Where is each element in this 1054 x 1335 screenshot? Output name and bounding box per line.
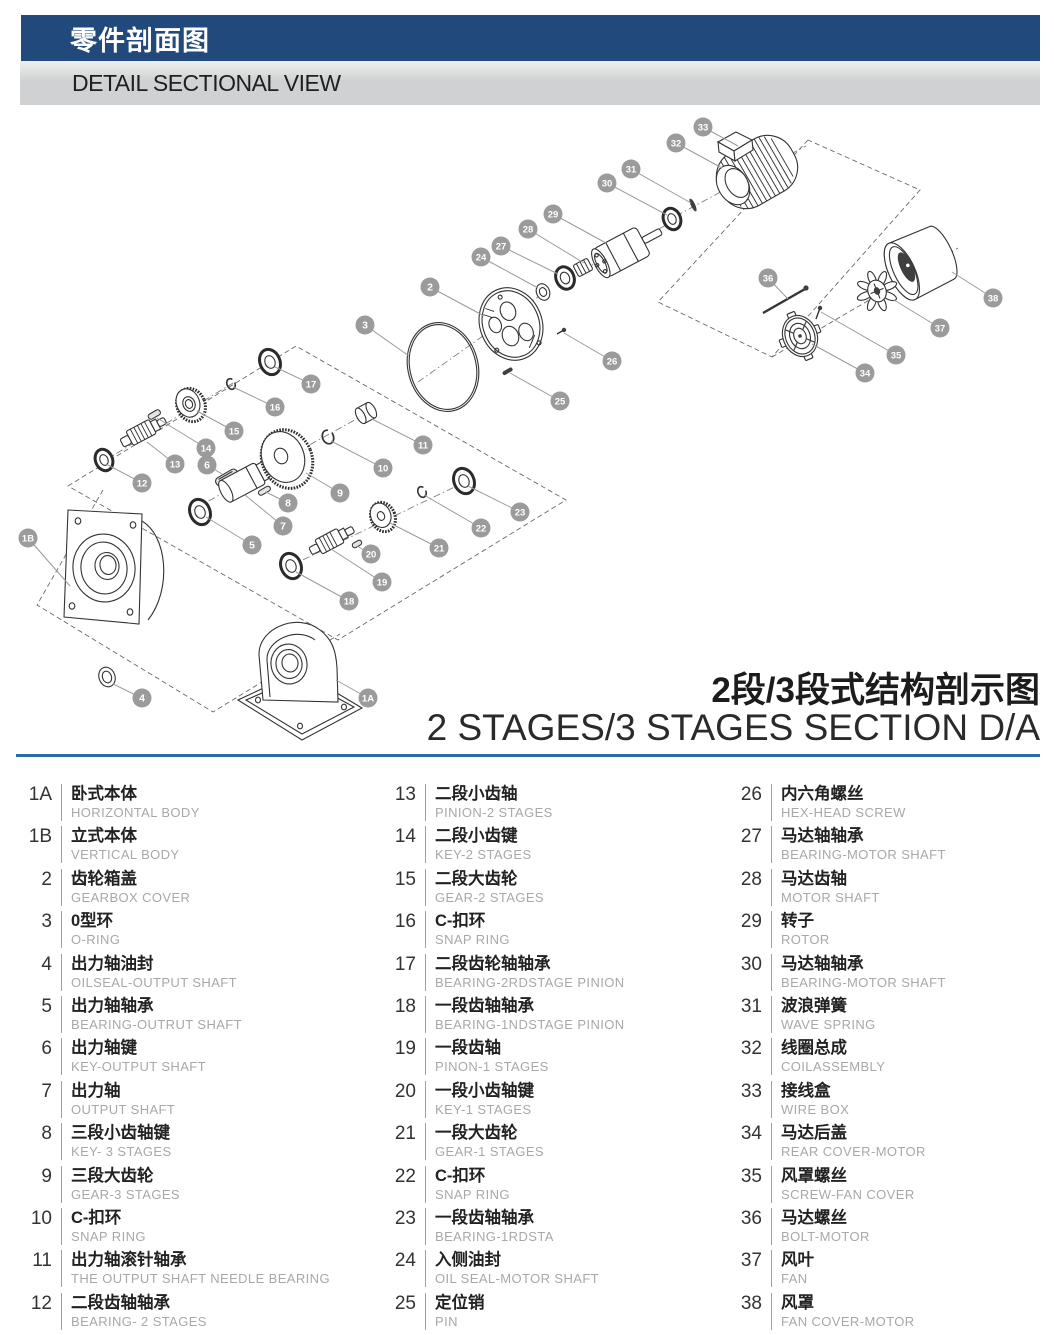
callout-25: 25	[510, 373, 570, 411]
part-names: 0型环O-RING	[61, 911, 120, 948]
callout-26: 26	[564, 333, 622, 371]
part-number: 3	[8, 911, 61, 932]
part-name-en: HEX-HEAD SCREW	[781, 805, 906, 820]
part-number: 23	[372, 1208, 425, 1229]
part-names: 出力轴轴承BEARING-OUTRUT SHAFT	[61, 996, 242, 1033]
part-number: 30	[718, 954, 771, 975]
part-names: 马达轴轴承BEARING-MOTOR SHAFT	[771, 826, 946, 863]
part-number: 36	[718, 1208, 771, 1229]
part-names: C-扣环SNAP RING	[425, 911, 510, 948]
part-30-bearing-motor	[660, 206, 684, 233]
part-name-en: GEARBOX COVER	[71, 890, 190, 905]
part-name-cn: 卧式本体	[71, 784, 200, 805]
part-number: 14	[372, 826, 425, 847]
part-name-cn: 二段大齿轮	[435, 869, 544, 890]
part-name-cn: 转子	[781, 911, 830, 932]
part-name-cn: 线圈总成	[781, 1038, 885, 1059]
part-row: 26内六角螺丝HEX-HEAD SCREW	[718, 784, 946, 826]
part-name-en: OILSEAL-OUTPUT SHAFT	[71, 975, 237, 990]
part-row: 24入侧油封OIL SEAL-MOTOR SHAFT	[372, 1250, 625, 1292]
part-name-en: PIN	[435, 1314, 485, 1329]
part-names: 二段小齿轴PINION-2 STAGES	[425, 784, 553, 821]
part-13-pinion-2nd	[118, 413, 169, 450]
part-name-en: SCREW-FAN COVER	[781, 1187, 915, 1202]
part-names: 入侧油封OIL SEAL-MOTOR SHAFT	[425, 1250, 599, 1287]
part-name-en: BEARING-OUTRUT SHAFT	[71, 1017, 242, 1032]
part-names: 一段齿轴PINON-1 STAGES	[425, 1038, 549, 1075]
part-row: 35风罩螺丝SCREW-FAN COVER	[718, 1166, 946, 1208]
part-names: 转子ROTOR	[771, 911, 830, 948]
callout-16: 16	[233, 387, 285, 417]
part-number: 12	[8, 1293, 61, 1314]
svg-text:38: 38	[988, 293, 999, 304]
svg-text:5: 5	[249, 539, 255, 551]
part-14-key-2nd	[147, 409, 161, 420]
part-number: 31	[718, 996, 771, 1017]
part-4-oil-seal-output	[96, 665, 118, 689]
part-name-en: BEARING-2RDSTAGE PINION	[435, 975, 625, 990]
part-name-en: OIL SEAL-MOTOR SHAFT	[435, 1271, 599, 1286]
part-number: 28	[718, 869, 771, 890]
part-row: 1A卧式本体HORIZONTAL BODY	[8, 784, 330, 826]
part-36-bolt-motor	[763, 285, 809, 313]
part-name-cn: 马达后盖	[781, 1123, 926, 1144]
part-number: 2	[8, 869, 61, 890]
part-name-cn: 三段大齿轮	[71, 1166, 180, 1187]
part-10-snap-ring	[320, 428, 335, 445]
part-row: 14二段小齿键KEY-2 STAGES	[372, 826, 625, 868]
part-names: 风叶FAN	[771, 1250, 814, 1287]
callout-35: 35	[821, 312, 906, 365]
part-5-bearing-output	[186, 496, 214, 528]
part-number: 16	[372, 911, 425, 932]
svg-text:14: 14	[201, 443, 212, 454]
part-number: 25	[372, 1293, 425, 1314]
diagram-title-en: 2 STAGES/3 STAGES SECTION D/A	[427, 707, 1040, 749]
callout-2: 2	[421, 278, 485, 317]
part-row: 21一段大齿轮GEAR-1 STAGES	[372, 1123, 625, 1165]
part-row: 19一段齿轴PINON-1 STAGES	[372, 1038, 625, 1080]
callout-9: 9	[306, 473, 350, 503]
part-28-motor-shaft	[573, 258, 593, 277]
svg-text:34: 34	[860, 368, 871, 379]
part-name-cn: C-扣环	[435, 1166, 510, 1187]
part-1b-vertical-body	[64, 510, 164, 624]
part-3-o-ring	[398, 314, 489, 419]
callout-29: 29	[544, 205, 607, 244]
part-name-cn: 二段小齿键	[435, 826, 532, 847]
part-name-cn: 出力轴油封	[71, 954, 237, 975]
part-12-bearing	[92, 447, 116, 474]
part-name-cn: 风罩螺丝	[781, 1166, 915, 1187]
part-names: 内六角螺丝HEX-HEAD SCREW	[771, 784, 906, 821]
callout-12: 12	[106, 464, 152, 493]
part-20-key-1st	[351, 539, 362, 548]
part-names: 三段小齿轴键KEY- 3 STAGES	[61, 1123, 172, 1160]
callout-3: 3	[356, 316, 410, 357]
part-name-cn: 一段齿轴轴承	[435, 996, 625, 1017]
part-number: 13	[372, 784, 425, 805]
callout-1B: 1B	[19, 529, 71, 587]
part-number: 37	[718, 1250, 771, 1271]
svg-text:25: 25	[555, 396, 566, 407]
part-names: 马达后盖REAR COVER-MOTOR	[771, 1123, 926, 1160]
parts-list-column-3: 26内六角螺丝HEX-HEAD SCREW27马达轴轴承BEARING-MOTO…	[718, 784, 946, 1335]
part-name-cn: 波浪弹簧	[781, 996, 876, 1017]
part-31-wave-spring	[688, 198, 698, 213]
part-name-en: PINION-2 STAGES	[435, 805, 553, 820]
callout-18: 18	[296, 572, 359, 611]
part-number: 24	[372, 1250, 425, 1271]
part-29-rotor	[588, 217, 668, 280]
callout-17: 17	[275, 367, 321, 394]
part-number: 27	[718, 826, 771, 847]
part-name-cn: 风叶	[781, 1250, 814, 1271]
svg-text:1B: 1B	[22, 533, 34, 544]
callout-5: 5	[206, 517, 262, 555]
part-name-en: KEY- 3 STAGES	[71, 1144, 172, 1159]
part-row: 16C-扣环SNAP RING	[372, 911, 625, 953]
part-name-cn: C-扣环	[71, 1208, 146, 1229]
part-name-en: BEARING-MOTOR SHAFT	[781, 975, 946, 990]
svg-text:32: 32	[671, 138, 682, 149]
svg-text:28: 28	[523, 224, 534, 235]
part-row: 23一段齿轴轴承BEARING-1RDSTA	[372, 1208, 625, 1250]
exploded-view-diagram: 1A1B234567891011121314151617181920212223…	[0, 0, 1054, 760]
part-name-en: GEAR-2 STAGES	[435, 890, 544, 905]
svg-text:8: 8	[285, 497, 291, 509]
part-names: 线圈总成COILASSEMBLY	[771, 1038, 885, 1075]
callout-19: 19	[331, 549, 392, 592]
part-24-oil-seal-motor	[534, 282, 552, 303]
part-number: 1A	[8, 784, 61, 805]
part-name-cn: 出力轴键	[71, 1038, 206, 1059]
part-number: 22	[372, 1166, 425, 1187]
part-name-cn: 一段小齿轴键	[435, 1081, 534, 1102]
part-names: 出力轴键KEY-OUTPUT SHAFT	[61, 1038, 206, 1075]
part-row: 38风罩FAN COVER-MOTOR	[718, 1293, 946, 1335]
part-row: 13二段小齿轴PINION-2 STAGES	[372, 784, 625, 826]
part-number: 35	[718, 1166, 771, 1187]
part-row: 7出力轴OUTPUT SHAFT	[8, 1081, 330, 1123]
part-name-en: SNAP RING	[71, 1229, 146, 1244]
svg-text:15: 15	[229, 426, 240, 437]
part-name-en: BEARING-MOTOR SHAFT	[781, 847, 946, 862]
part-names: C-扣环SNAP RING	[61, 1208, 146, 1245]
part-19-pinion-1st	[307, 522, 357, 559]
part-number: 17	[372, 954, 425, 975]
part-number: 32	[718, 1038, 771, 1059]
part-1a-horizontal-body	[238, 622, 362, 740]
part-name-cn: 齿轮箱盖	[71, 869, 190, 890]
part-names: 马达齿轴MOTOR SHAFT	[771, 869, 880, 906]
part-number: 21	[372, 1123, 425, 1144]
svg-text:1A: 1A	[362, 693, 374, 704]
part-number: 29	[718, 911, 771, 932]
part-name-en: REAR COVER-MOTOR	[781, 1144, 926, 1159]
part-names: 马达螺丝BOLT-MOTOR	[771, 1208, 870, 1245]
part-row: 28马达齿轴MOTOR SHAFT	[718, 869, 946, 911]
part-row: 22C-扣环SNAP RING	[372, 1166, 625, 1208]
part-name-en: KEY-1 STAGES	[435, 1102, 534, 1117]
part-row: 11出力轴滚针轴承THE OUTPUT SHAFT NEEDLE BEARING	[8, 1250, 330, 1292]
part-name-cn: 0型环	[71, 911, 120, 932]
part-names: 风罩FAN COVER-MOTOR	[771, 1293, 915, 1330]
part-number: 18	[372, 996, 425, 1017]
callout-11: 11	[372, 419, 433, 455]
part-name-cn: 定位销	[435, 1293, 485, 1314]
callout-23: 23	[468, 486, 530, 522]
callout-10: 10	[331, 441, 393, 478]
part-row: 10C-扣环SNAP RING	[8, 1208, 330, 1250]
svg-text:36: 36	[763, 273, 774, 284]
part-names: 立式本体VERTICAL BODY	[61, 826, 180, 863]
part-number: 34	[718, 1123, 771, 1144]
callout-14: 14	[157, 418, 216, 458]
svg-text:23: 23	[515, 507, 526, 518]
parts-list-column-1: 1A卧式本体HORIZONTAL BODY1B立式本体VERTICAL BODY…	[8, 784, 330, 1335]
part-34-rear-cover	[771, 305, 829, 367]
part-name-en: BEARING-1RDSTA	[435, 1229, 554, 1244]
callout-layer: 1A1B234567891011121314151617181920212223…	[19, 118, 1003, 708]
part-names: 一段大齿轮GEAR-1 STAGES	[425, 1123, 544, 1160]
part-21-gear-1st	[366, 499, 399, 536]
part-17-bearing-2nd	[256, 346, 284, 378]
part-row: 1B立式本体VERTICAL BODY	[8, 826, 330, 868]
part-name-en: FAN	[781, 1271, 814, 1286]
part-name-en: VERTICAL BODY	[71, 847, 180, 862]
part-row: 36马达螺丝BOLT-MOTOR	[718, 1208, 946, 1250]
part-number: 15	[372, 869, 425, 890]
accent-divider	[16, 754, 1040, 757]
part-number: 7	[8, 1081, 61, 1102]
part-name-cn: 立式本体	[71, 826, 180, 847]
svg-text:22: 22	[476, 523, 487, 534]
part-name-en: KEY-2 STAGES	[435, 847, 532, 862]
svg-text:10: 10	[378, 463, 389, 474]
part-name-cn: 一段齿轴轴承	[435, 1208, 554, 1229]
part-name-en: GEAR-3 STAGES	[71, 1187, 180, 1202]
diagram-title-cn: 2段/3段式结构剖示图	[711, 662, 1040, 713]
part-names: 卧式本体HORIZONTAL BODY	[61, 784, 200, 821]
svg-text:35: 35	[891, 350, 902, 361]
part-name-cn: 马达螺丝	[781, 1208, 870, 1229]
part-row: 30马达轴轴承BEARING-MOTOR SHAFT	[718, 954, 946, 996]
part-number: 19	[372, 1038, 425, 1059]
part-name-en: COILASSEMBLY	[781, 1059, 885, 1074]
callout-13: 13	[147, 442, 185, 474]
part-name-cn: 入侧油封	[435, 1250, 599, 1271]
part-name-cn: 马达轴轴承	[781, 954, 946, 975]
part-name-en: FAN COVER-MOTOR	[781, 1314, 915, 1329]
part-number: 11	[8, 1250, 61, 1271]
part-row: 20一段小齿轴键KEY-1 STAGES	[372, 1081, 625, 1123]
part-number: 26	[718, 784, 771, 805]
part-names: 二段大齿轮GEAR-2 STAGES	[425, 869, 544, 906]
part-names: 波浪弹簧WAVE SPRING	[771, 996, 876, 1033]
part-names: 出力轴滚针轴承THE OUTPUT SHAFT NEEDLE BEARING	[61, 1250, 330, 1287]
svg-text:19: 19	[377, 577, 388, 588]
svg-text:30: 30	[602, 178, 613, 189]
part-names: 出力轴OUTPUT SHAFT	[61, 1081, 175, 1118]
part-name-cn: 出力轴滚针轴承	[71, 1250, 330, 1271]
callout-37: 37	[894, 300, 950, 338]
svg-text:21: 21	[434, 543, 445, 554]
part-name-en: BEARING-1NDSTAGE PINION	[435, 1017, 625, 1032]
callout-6: 6	[198, 456, 223, 475]
part-name-cn: 一段大齿轮	[435, 1123, 544, 1144]
part-row: 34马达后盖REAR COVER-MOTOR	[718, 1123, 946, 1165]
part-name-en: GEAR-1 STAGES	[435, 1144, 544, 1159]
part-names: 一段齿轴轴承BEARING-1NDSTAGE PINION	[425, 996, 625, 1033]
callout-36: 36	[759, 269, 789, 300]
svg-text:3: 3	[362, 319, 368, 331]
part-name-cn: 二段小齿轴	[435, 784, 553, 805]
part-row: 37风叶FAN	[718, 1250, 946, 1292]
part-names: 一段小齿轴键KEY-1 STAGES	[425, 1081, 534, 1118]
part-row: 18一段齿轴轴承BEARING-1NDSTAGE PINION	[372, 996, 625, 1038]
part-row: 32线圈总成COILASSEMBLY	[718, 1038, 946, 1080]
callout-30: 30	[598, 174, 668, 216]
part-name-en: WIRE BOX	[781, 1102, 849, 1117]
part-name-cn: 二段齿轴轴承	[71, 1293, 207, 1314]
part-row: 12二段齿轴轴承BEARING- 2 STAGES	[8, 1293, 330, 1335]
callout-34: 34	[812, 344, 875, 383]
part-name-en: THE OUTPUT SHAFT NEEDLE BEARING	[71, 1271, 330, 1286]
part-number: 4	[8, 954, 61, 975]
svg-text:7: 7	[280, 520, 286, 532]
part-name-en: BOLT-MOTOR	[781, 1229, 870, 1244]
part-row: 4出力轴油封OILSEAL-OUTPUT SHAFT	[8, 954, 330, 996]
part-name-cn: 二段齿轮轴轴承	[435, 954, 625, 975]
part-name-en: O-RING	[71, 932, 120, 947]
parts-list-column-2: 13二段小齿轴PINION-2 STAGES14二段小齿键KEY-2 STAGE…	[372, 784, 625, 1335]
part-names: 二段齿轴轴承BEARING- 2 STAGES	[61, 1293, 207, 1330]
part-11-needle-bearing	[353, 401, 379, 425]
part-name-cn: 出力轴轴承	[71, 996, 242, 1017]
part-names: 马达轴轴承BEARING-MOTOR SHAFT	[771, 954, 946, 991]
svg-text:29: 29	[548, 209, 559, 220]
callout-21: 21	[390, 523, 449, 558]
svg-text:33: 33	[698, 122, 709, 133]
svg-text:18: 18	[344, 596, 355, 607]
callout-4: 4	[113, 684, 152, 708]
part-row: 15二段大齿轮GEAR-2 STAGES	[372, 869, 625, 911]
svg-text:31: 31	[626, 164, 637, 175]
svg-text:26: 26	[607, 356, 618, 367]
part-name-en: HORIZONTAL BODY	[71, 805, 200, 820]
part-row: 17二段齿轮轴轴承BEARING-2RDSTAGE PINION	[372, 954, 625, 996]
part-row: 9三段大齿轮GEAR-3 STAGES	[8, 1166, 330, 1208]
part-row: 8三段小齿轴键KEY- 3 STAGES	[8, 1123, 330, 1165]
part-name-en: PINON-1 STAGES	[435, 1059, 549, 1074]
part-row: 27马达轴轴承BEARING-MOTOR SHAFT	[718, 826, 946, 868]
part-names: 风罩螺丝SCREW-FAN COVER	[771, 1166, 915, 1203]
part-names: 接线盒WIRE BOX	[771, 1081, 849, 1118]
callout-32: 32	[667, 134, 723, 169]
callout-38: 38	[952, 272, 1003, 308]
part-23-bearing-1st-b	[450, 465, 478, 497]
part-row: 5出力轴轴承BEARING-OUTRUT SHAFT	[8, 996, 330, 1038]
part-name-cn: 马达齿轴	[781, 869, 880, 890]
part-names: 出力轴油封OILSEAL-OUTPUT SHAFT	[61, 954, 237, 991]
svg-text:4: 4	[139, 692, 145, 704]
part-number: 1B	[8, 826, 61, 847]
part-row: 30型环O-RING	[8, 911, 330, 953]
part-number: 6	[8, 1038, 61, 1059]
part-row: 6出力轴键KEY-OUTPUT SHAFT	[8, 1038, 330, 1080]
svg-text:11: 11	[418, 440, 429, 451]
part-number: 33	[718, 1081, 771, 1102]
svg-text:20: 20	[366, 549, 377, 560]
part-15-gear-2nd	[172, 384, 211, 426]
part-names: 二段齿轮轴轴承BEARING-2RDSTAGE PINION	[425, 954, 625, 991]
part-names: 二段小齿键KEY-2 STAGES	[425, 826, 532, 863]
svg-text:12: 12	[137, 478, 148, 489]
part-number: 38	[718, 1293, 771, 1314]
part-names: 三段大齿轮GEAR-3 STAGES	[61, 1166, 180, 1203]
svg-text:9: 9	[337, 487, 343, 499]
part-number: 8	[8, 1123, 61, 1144]
part-names: 定位销PIN	[425, 1293, 485, 1330]
svg-text:27: 27	[496, 241, 507, 252]
part-name-en: KEY-OUTPUT SHAFT	[71, 1059, 206, 1074]
part-name-cn: 内六角螺丝	[781, 784, 906, 805]
part-number: 10	[8, 1208, 61, 1229]
part-name-en: BEARING- 2 STAGES	[71, 1314, 207, 1329]
svg-text:24: 24	[476, 252, 487, 263]
part-names: C-扣环SNAP RING	[425, 1166, 510, 1203]
page: 零件剖面图 DETAIL SECTIONAL VIEW	[0, 0, 1054, 1335]
callout-22: 22	[424, 495, 491, 538]
svg-text:17: 17	[306, 379, 317, 390]
part-name-en: ROTOR	[781, 932, 830, 947]
part-number: 9	[8, 1166, 61, 1187]
part-18-bearing-1st	[277, 550, 305, 582]
part-name-en: OUTPUT SHAFT	[71, 1102, 175, 1117]
part-name-cn: 马达轴轴承	[781, 826, 946, 847]
svg-text:13: 13	[170, 459, 181, 470]
part-row: 29转子ROTOR	[718, 911, 946, 953]
part-name-cn: 一段齿轴	[435, 1038, 549, 1059]
part-row: 33接线盒WIRE BOX	[718, 1081, 946, 1123]
part-name-en: SNAP RING	[435, 932, 510, 947]
part-row: 2齿轮箱盖GEARBOX COVER	[8, 869, 330, 911]
part-name-en: WAVE SPRING	[781, 1017, 876, 1032]
callout-8: 8	[266, 492, 298, 513]
part-name-cn: 接线盒	[781, 1081, 849, 1102]
construction-guides	[37, 140, 958, 712]
part-number: 5	[8, 996, 61, 1017]
part-name-cn: 出力轴	[71, 1081, 175, 1102]
part-row: 31波浪弹簧WAVE SPRING	[718, 996, 946, 1038]
svg-text:16: 16	[270, 402, 281, 413]
svg-text:37: 37	[935, 323, 946, 334]
part-name-cn: C-扣环	[435, 911, 510, 932]
callout-20: 20	[357, 545, 381, 564]
part-name-en: SNAP RING	[435, 1187, 510, 1202]
part-row: 25定位销PIN	[372, 1293, 625, 1335]
part-name-cn: 三段小齿轴键	[71, 1123, 172, 1144]
svg-text:6: 6	[204, 459, 210, 471]
part-names: 齿轮箱盖GEARBOX COVER	[61, 869, 190, 906]
part-names: 一段齿轴轴承BEARING-1RDSTA	[425, 1208, 554, 1245]
part-name-en: MOTOR SHAFT	[781, 890, 880, 905]
svg-text:2: 2	[427, 281, 433, 293]
part-number: 20	[372, 1081, 425, 1102]
part-name-cn: 风罩	[781, 1293, 915, 1314]
